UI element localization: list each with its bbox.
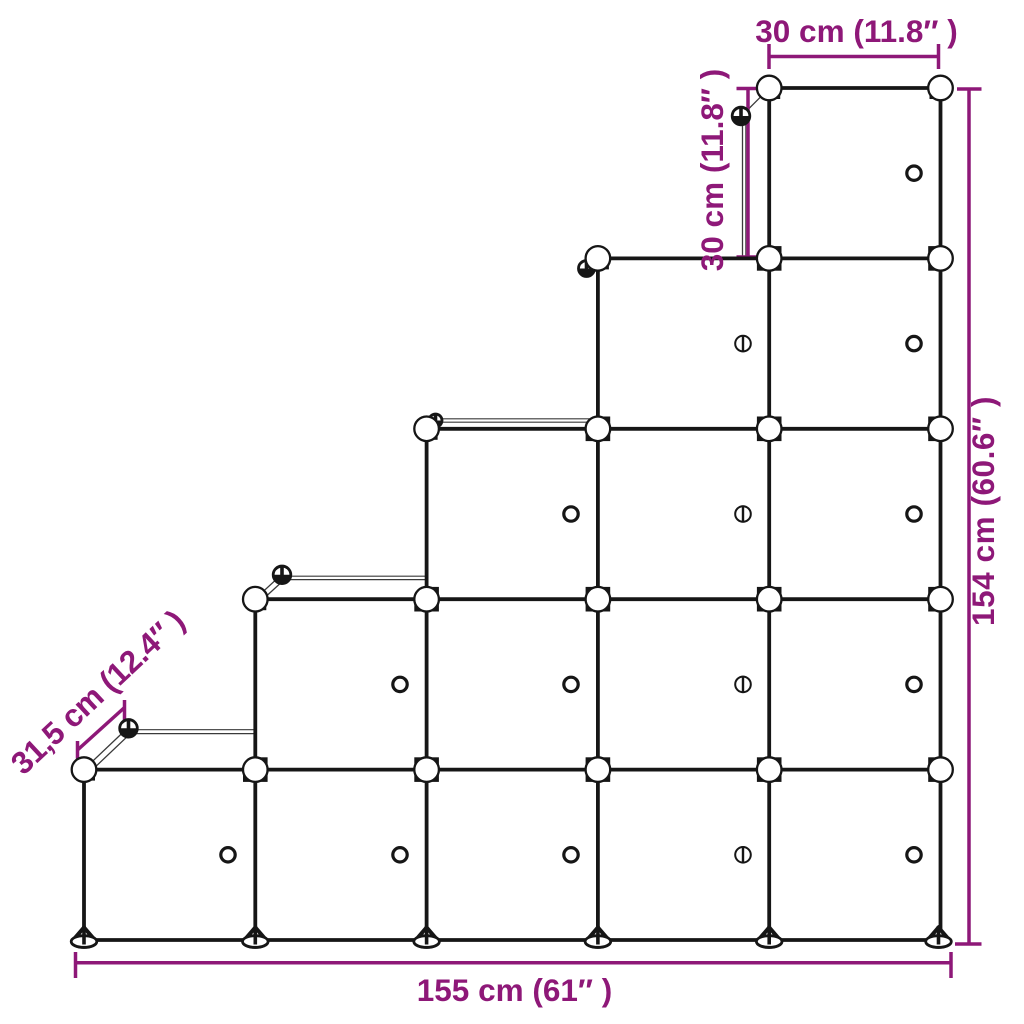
- svg-text:30 cm (11.8″ ): 30 cm (11.8″ ): [694, 69, 730, 271]
- svg-text:154 cm (60.6″ ): 154 cm (60.6″ ): [965, 396, 1001, 626]
- svg-text:155 cm (61″ ): 155 cm (61″ ): [417, 972, 612, 1008]
- svg-text:30 cm (11.8″ ): 30 cm (11.8″ ): [755, 13, 957, 49]
- svg-text:31,5 cm (12.4″ ): 31,5 cm (12.4″ ): [4, 603, 192, 782]
